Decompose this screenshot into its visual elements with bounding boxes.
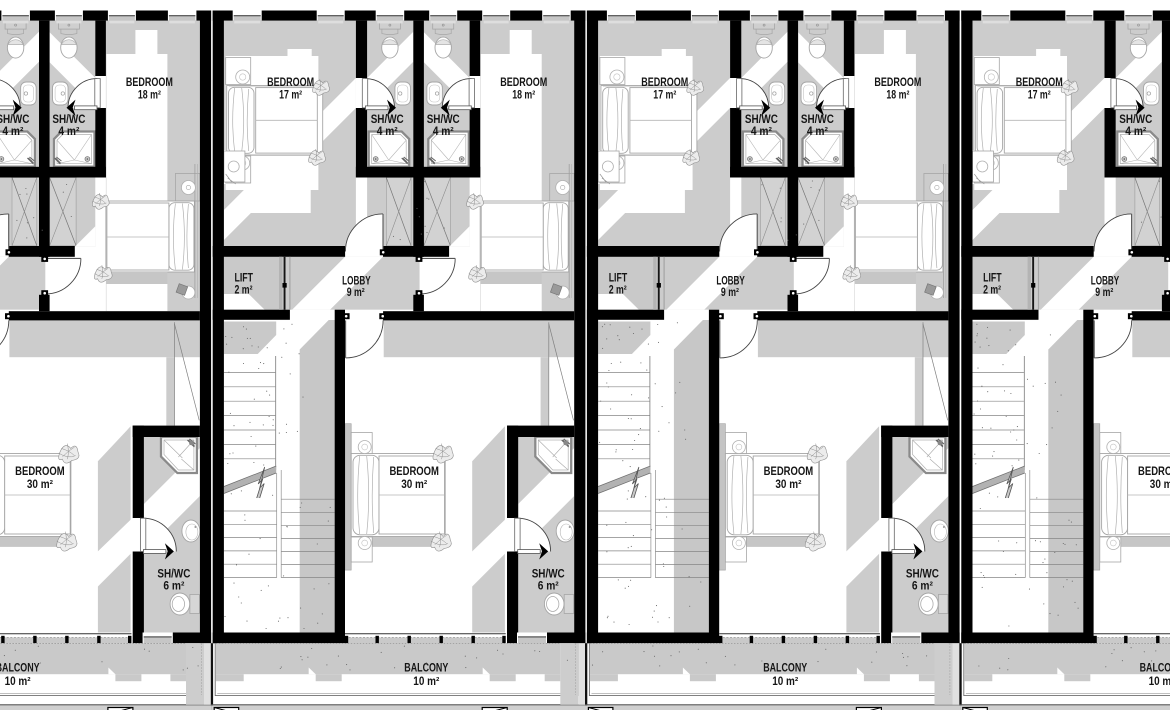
svg-text:30 m²: 30 m² <box>775 479 801 491</box>
svg-text:9 m²: 9 m² <box>347 287 365 299</box>
svg-text:4 m²: 4 m² <box>1125 126 1146 138</box>
svg-text:BEDROOM: BEDROOM <box>500 77 547 89</box>
svg-text:SH/WC: SH/WC <box>0 114 29 126</box>
svg-text:SH/WC: SH/WC <box>532 569 565 581</box>
svg-text:17 m²: 17 m² <box>1028 90 1051 102</box>
svg-text:18 m²: 18 m² <box>512 90 535 102</box>
svg-text:BEDROOM: BEDROOM <box>126 77 173 89</box>
svg-text:BALCONY: BALCONY <box>1140 663 1170 675</box>
svg-text:2 m²: 2 m² <box>609 285 627 297</box>
svg-text:BALCONY: BALCONY <box>763 663 807 675</box>
svg-text:10 m²: 10 m² <box>1149 676 1170 688</box>
svg-text:4 m²: 4 m² <box>807 126 828 138</box>
svg-text:2 m²: 2 m² <box>235 285 253 297</box>
svg-text:LOBBY: LOBBY <box>342 275 371 287</box>
svg-text:LIFT: LIFT <box>235 273 254 285</box>
svg-text:10 m²: 10 m² <box>772 676 798 688</box>
svg-text:30 m²: 30 m² <box>401 479 427 491</box>
svg-text:SH/WC: SH/WC <box>427 114 460 126</box>
svg-text:SH/WC: SH/WC <box>157 569 190 581</box>
svg-text:18 m²: 18 m² <box>138 90 161 102</box>
svg-text:4 m²: 4 m² <box>2 126 23 138</box>
svg-text:BEDROOM: BEDROOM <box>764 466 814 478</box>
svg-text:BEDROOM: BEDROOM <box>1016 77 1063 89</box>
svg-text:30 m²: 30 m² <box>1150 479 1170 491</box>
svg-text:4 m²: 4 m² <box>377 126 398 138</box>
svg-text:BALCONY: BALCONY <box>404 663 448 675</box>
svg-text:LIFT: LIFT <box>983 273 1002 285</box>
svg-text:LIFT: LIFT <box>609 273 628 285</box>
svg-text:10 m²: 10 m² <box>5 676 31 688</box>
svg-text:BEDROOM: BEDROOM <box>1138 466 1170 478</box>
svg-text:6 m²: 6 m² <box>538 581 559 593</box>
svg-text:BEDROOM: BEDROOM <box>874 77 921 89</box>
svg-text:BEDROOM: BEDROOM <box>267 77 314 89</box>
svg-text:BEDROOM: BEDROOM <box>641 77 688 89</box>
svg-text:17 m²: 17 m² <box>653 90 676 102</box>
svg-text:17 m²: 17 m² <box>279 90 302 102</box>
svg-text:9 m²: 9 m² <box>721 287 739 299</box>
svg-text:LOBBY: LOBBY <box>716 275 745 287</box>
svg-text:BEDROOM: BEDROOM <box>389 466 439 478</box>
svg-text:10 m²: 10 m² <box>413 676 439 688</box>
svg-text:4 m²: 4 m² <box>433 126 454 138</box>
svg-text:SH/WC: SH/WC <box>52 114 85 126</box>
svg-text:BALCONY: BALCONY <box>0 663 40 675</box>
svg-text:SH/WC: SH/WC <box>371 114 404 126</box>
svg-text:SH/WC: SH/WC <box>745 114 778 126</box>
svg-text:SH/WC: SH/WC <box>906 569 939 581</box>
svg-text:4 m²: 4 m² <box>58 126 79 138</box>
svg-text:BEDROOM: BEDROOM <box>15 466 65 478</box>
svg-text:SH/WC: SH/WC <box>801 114 834 126</box>
svg-text:30 m²: 30 m² <box>27 479 53 491</box>
svg-text:18 m²: 18 m² <box>886 90 909 102</box>
svg-text:6 m²: 6 m² <box>163 581 184 593</box>
svg-text:4 m²: 4 m² <box>751 126 772 138</box>
svg-text:9 m²: 9 m² <box>1095 287 1113 299</box>
svg-text:SH/WC: SH/WC <box>1119 114 1152 126</box>
svg-text:6 m²: 6 m² <box>912 581 933 593</box>
svg-text:2 m²: 2 m² <box>983 285 1001 297</box>
svg-text:LOBBY: LOBBY <box>1091 275 1120 287</box>
